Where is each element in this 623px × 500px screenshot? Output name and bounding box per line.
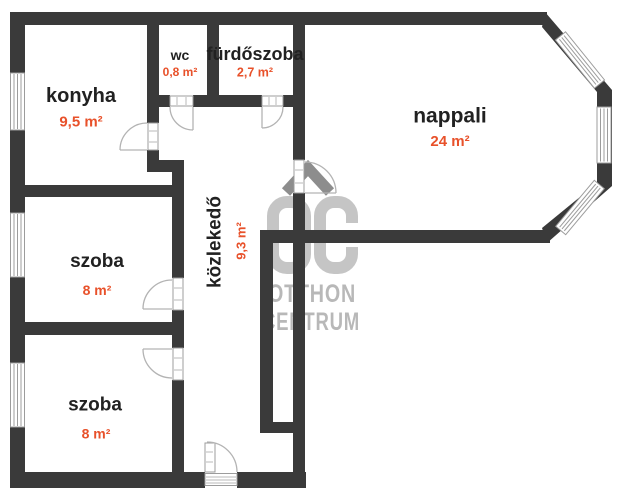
room-area-kitchen: 9,5 m² xyxy=(59,114,102,131)
watermark-line1: OTTHON xyxy=(268,280,356,308)
window-bay-middle xyxy=(597,107,611,163)
wall-hall-west-seg xyxy=(172,310,184,348)
wall-hall-west-seg xyxy=(172,172,184,278)
door-kitchen xyxy=(120,123,158,150)
room-area-room1: 8 m² xyxy=(83,282,112,298)
window-bay-lower xyxy=(556,180,605,234)
room-area-bathroom: 2,7 m² xyxy=(237,66,273,80)
door-wc xyxy=(170,96,193,130)
wall-wet-south-seg xyxy=(159,95,170,107)
wall-wet-south-seg xyxy=(193,95,262,107)
wall-left-seg xyxy=(10,277,25,363)
wall-kitchen-south xyxy=(25,185,172,197)
room-label-kitchen: konyha xyxy=(46,85,117,107)
wall-kitchen-east-seg xyxy=(147,150,159,172)
wall-top xyxy=(10,12,547,25)
wall-shaft-west xyxy=(260,243,273,422)
door-entrance xyxy=(205,442,237,486)
watermark-roof-icon xyxy=(286,168,330,192)
room-area-livingroom: 24 m² xyxy=(430,133,469,150)
room-label-hallway: közlekedő xyxy=(205,196,226,288)
floorplan-canvas: OTTHON CENTRUM xyxy=(0,0,623,500)
room-label-livingroom: nappali xyxy=(413,105,487,128)
wall-kitchen-east-seg xyxy=(147,25,159,123)
room-label-room2: szoba xyxy=(68,395,122,416)
window-bay-upper xyxy=(555,32,604,88)
floorplan: OTTHON CENTRUM xyxy=(0,0,623,500)
door-bathroom xyxy=(262,96,283,128)
wall-step-stub xyxy=(159,160,184,172)
wall-left-seg xyxy=(10,130,25,213)
door-room1 xyxy=(143,278,183,310)
wall-hall-west-seg xyxy=(172,380,184,472)
wall-shaft-south xyxy=(260,422,305,433)
room-label-room1: szoba xyxy=(70,251,124,272)
door-room2 xyxy=(143,348,183,380)
watermark-line2: CENTRUM xyxy=(262,308,360,336)
room-label-bathroom: fürdőszoba xyxy=(207,44,305,64)
wall-bottom-seg xyxy=(237,472,306,488)
wall-left-seg xyxy=(10,12,25,73)
wall-bottom-seg xyxy=(10,472,205,488)
room-area-room2: 8 m² xyxy=(82,426,111,442)
window-room1 xyxy=(11,213,25,277)
wall-room-divider xyxy=(25,322,172,335)
room-area-hallway: 9,3 m² xyxy=(234,222,249,260)
window-room2 xyxy=(11,363,25,427)
window-kitchen xyxy=(11,73,25,130)
room-label-wc: wc xyxy=(170,47,190,63)
room-area-wc: 0,8 m² xyxy=(163,65,198,79)
